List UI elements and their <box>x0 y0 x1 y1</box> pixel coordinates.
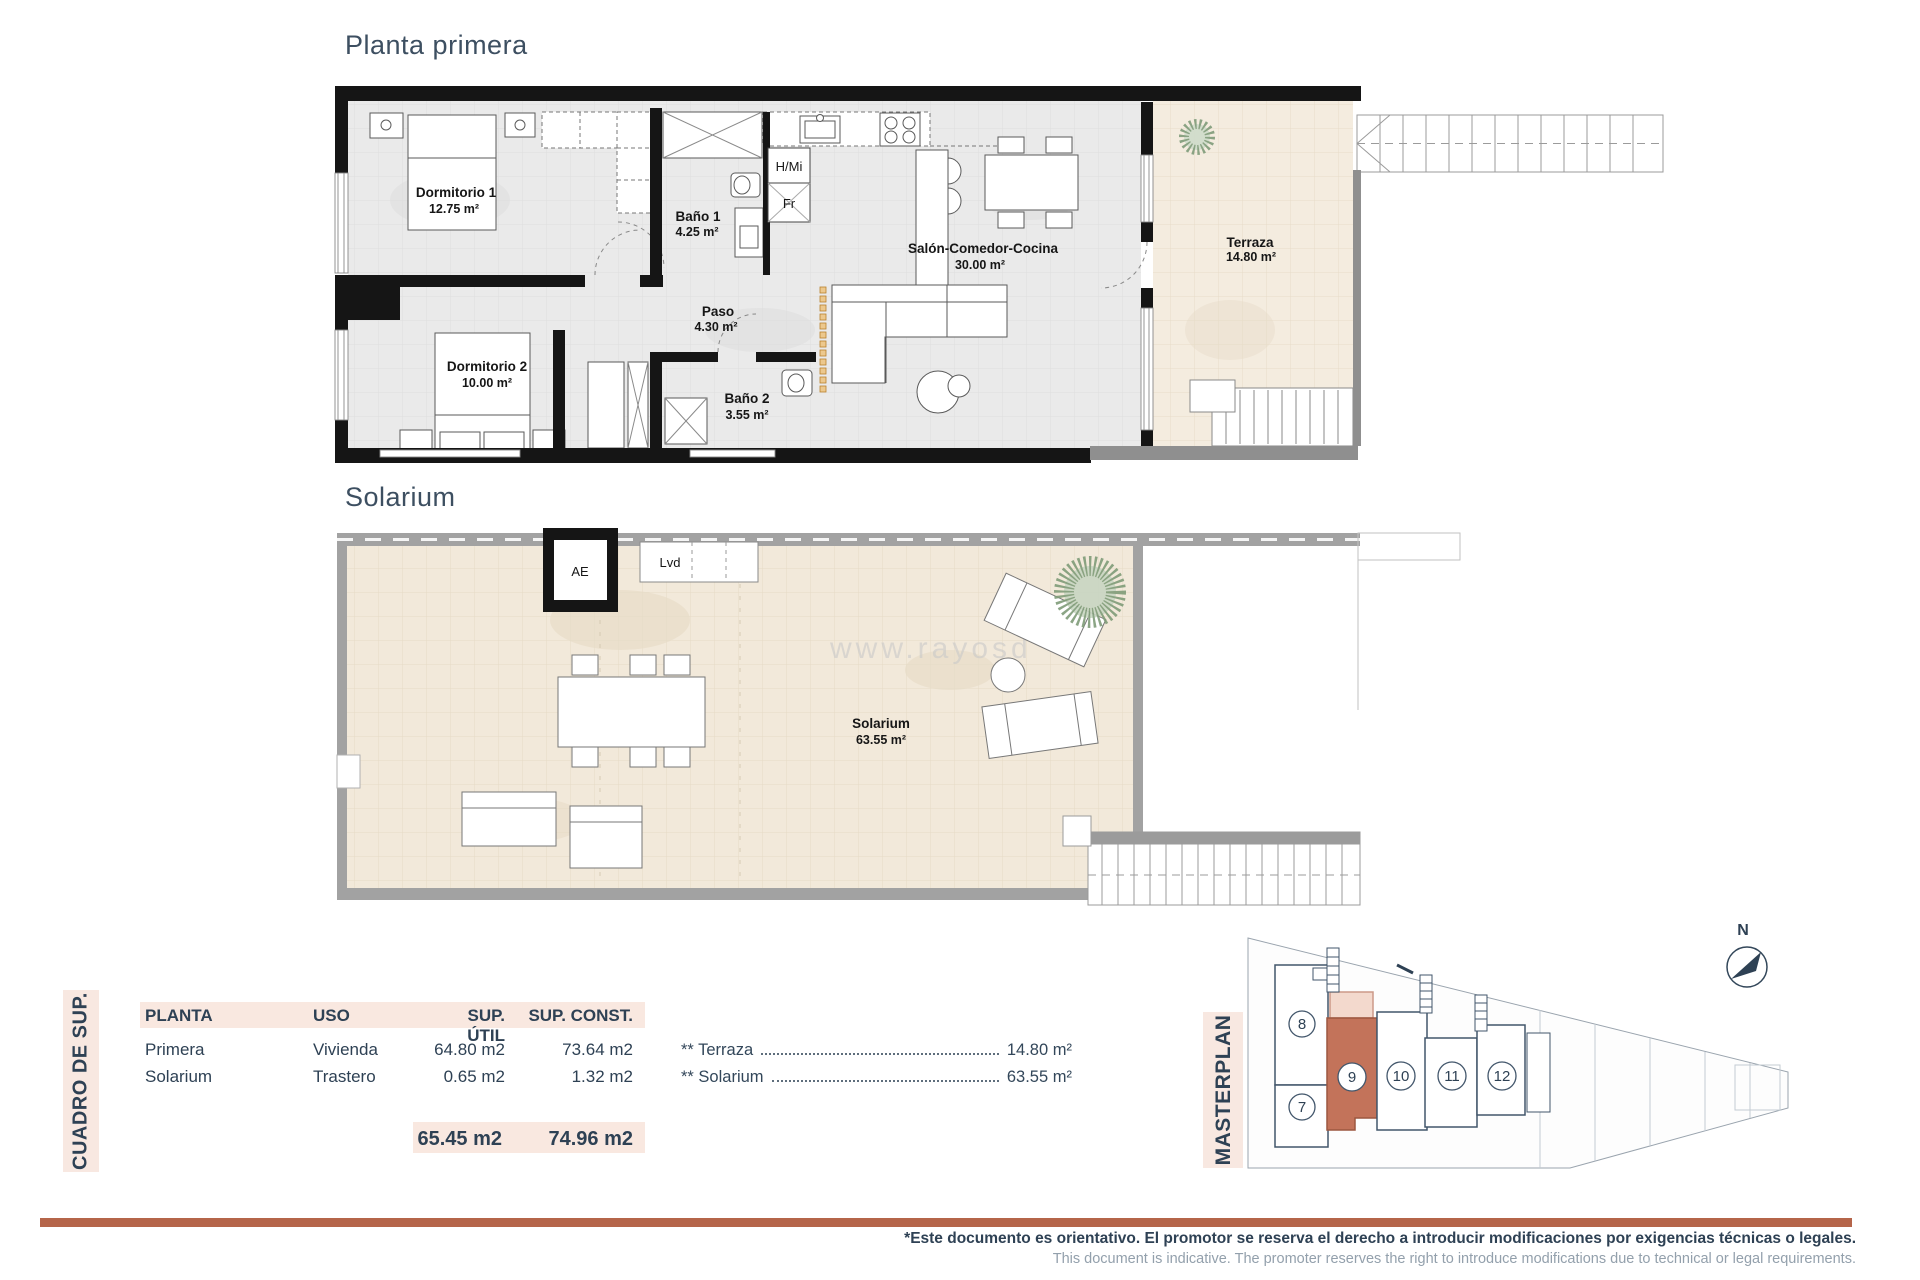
annotation-label: ** Solarium <box>681 1068 764 1087</box>
bano2-toilet <box>782 370 812 396</box>
dorm2-area-label: 10.00 m² <box>462 376 512 390</box>
hmi-label: H/Mi <box>776 159 803 174</box>
bano1-area-label: 4.25 m² <box>675 225 718 239</box>
solarium-area-label: 63.55 m² <box>856 733 906 747</box>
plan1-title: Planta primera <box>345 30 528 61</box>
wall-notch <box>337 755 360 788</box>
lvd-cabinet: Lvd <box>640 542 758 582</box>
cuadro-de-sup-label: CUADRO DE SUP. <box>63 990 99 1172</box>
paso-room-label: Paso <box>702 304 734 319</box>
side-table <box>991 658 1025 692</box>
paso-area-label: 4.30 m² <box>694 320 737 334</box>
masterplan-label: MASTERPLAN <box>1212 1015 1235 1166</box>
bano2-area-label: 3.55 m² <box>725 408 768 422</box>
total-const: 74.96 m2 <box>502 1124 645 1155</box>
area-annotations: ** Terraza 14.80 m² ** Solarium 63.55 m² <box>681 1033 1072 1087</box>
unit-12-annex <box>1527 1033 1550 1112</box>
unit-10-number: 10 <box>1393 1068 1410 1085</box>
kitchen-sink-icon <box>800 115 840 144</box>
row1-util: 64.80 m2 <box>428 1037 505 1063</box>
neighbour-outline <box>1358 533 1460 710</box>
annotation-label: ** Terraza <box>681 1041 753 1060</box>
annotation-solarium: ** Solarium 63.55 m² <box>681 1060 1072 1087</box>
bano2-room-label: Baño 2 <box>724 391 769 406</box>
lvd-label: Lvd <box>660 555 681 570</box>
kitchen-stove-icon <box>880 113 920 146</box>
masterplan: MASTERPLAN <box>1195 905 1855 1185</box>
north-label: N <box>1737 922 1749 939</box>
plan2-title: Solarium <box>345 482 456 513</box>
north-arrow-icon: N <box>1727 922 1767 987</box>
bano1-toilet <box>731 173 760 197</box>
bano1-shower <box>663 112 762 158</box>
unit-9-terrace <box>1330 992 1373 1018</box>
total-util: 65.45 m2 <box>413 1124 502 1155</box>
dorm1-area-label: 12.75 m² <box>429 202 479 216</box>
brochure-page: Planta primera <box>0 0 1920 1280</box>
dorm1-room-label: Dormitorio 1 <box>416 185 497 200</box>
totals-row: 65.45 m2 74.96 m2 <box>413 1124 645 1155</box>
row1-const: 73.64 m2 <box>505 1037 645 1063</box>
terraza-area-label: 14.80 m² <box>1226 250 1276 264</box>
tree-icon <box>1064 566 1116 618</box>
unit-9-number: 9 <box>1348 1069 1356 1086</box>
ae-shaft: AE <box>543 528 618 612</box>
table-row: Solarium Trastero 0.65 m2 1.32 m2 <box>140 1064 645 1090</box>
unit-11-number: 11 <box>1444 1068 1460 1085</box>
unit-12-number: 12 <box>1494 1068 1511 1085</box>
bano1-room-label: Baño 1 <box>675 209 721 224</box>
ae-label: AE <box>571 564 589 579</box>
row1-planta: Primera <box>140 1037 308 1063</box>
unit-7-number: 7 <box>1298 1099 1306 1116</box>
dotted-leader <box>772 1080 999 1082</box>
bano1-washbasin <box>735 208 763 257</box>
tree-icon <box>1184 124 1210 150</box>
unit-8-number: 8 <box>1298 1016 1306 1033</box>
solarium-room-label: Solarium <box>852 716 910 731</box>
terraza-room-label: Terraza <box>1226 235 1274 250</box>
salon-area-label: 30.00 m² <box>955 258 1005 272</box>
terraza-stairs <box>1190 380 1353 446</box>
dorm2-room-label: Dormitorio 2 <box>447 359 527 374</box>
row1-uso: Vivienda <box>308 1037 428 1063</box>
row2-uso: Trastero <box>308 1064 428 1090</box>
annotation-terraza: ** Terraza 14.80 m² <box>681 1033 1072 1060</box>
fr-label: Fr <box>783 196 796 211</box>
row2-planta: Solarium <box>140 1064 308 1090</box>
annotation-value: 14.80 m² <box>1007 1041 1072 1060</box>
annotation-value: 63.55 m² <box>1007 1068 1072 1087</box>
hall-closets <box>588 362 648 448</box>
dotted-leader <box>761 1053 999 1055</box>
row2-util: 0.65 m2 <box>428 1064 505 1090</box>
bano2-shower <box>665 398 707 444</box>
planta-primera-floorplan: Dormitorio 1 12.75 m² Baño 1 4.25 m² H/M… <box>330 80 1680 470</box>
footer-accent-bar <box>40 1218 1852 1227</box>
table-row: Primera Vivienda 64.80 m2 73.64 m2 <box>140 1037 645 1063</box>
neighbour-stairs-top <box>1357 115 1663 172</box>
pouf-small <box>948 375 970 397</box>
row2-const: 1.32 m2 <box>505 1064 645 1090</box>
solarium-dining-table <box>558 655 705 767</box>
disclaimer-en: This document is indicative. The promote… <box>556 1251 1856 1267</box>
disclaimer-es: *Este documento es orientativo. El promo… <box>556 1230 1856 1248</box>
solarium-floorplan: www.rayosd <box>330 520 1680 920</box>
salon-room-label: Salón-Comedor-Cocina <box>908 241 1059 256</box>
